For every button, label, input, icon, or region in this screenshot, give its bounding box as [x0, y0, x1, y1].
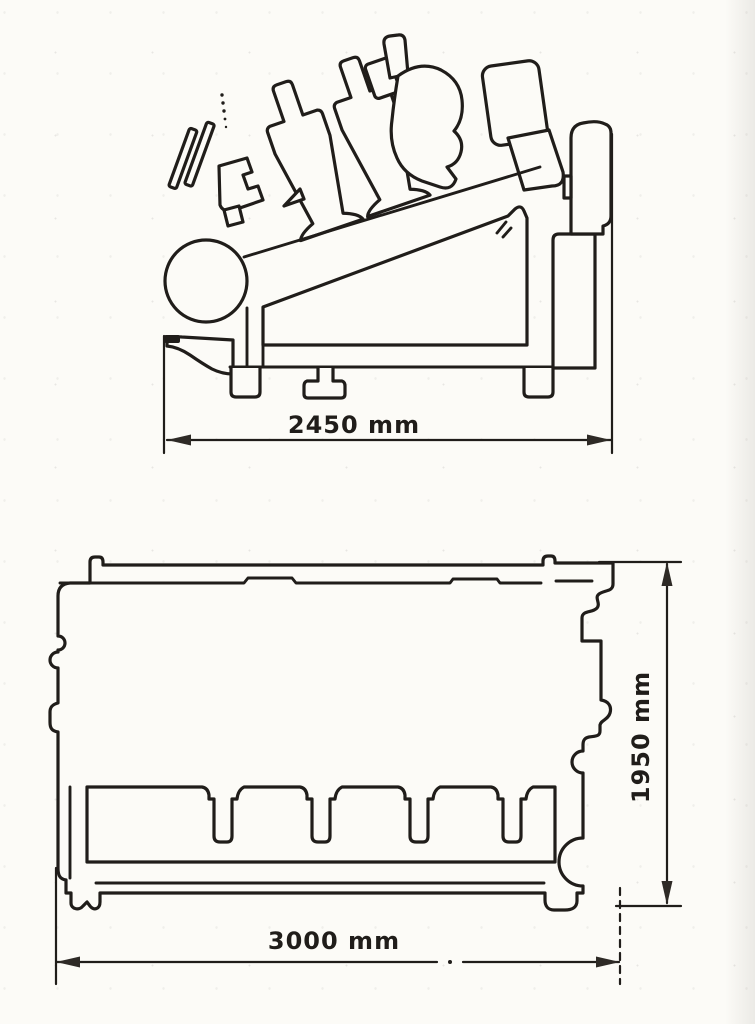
arrowhead-right — [587, 435, 611, 446]
engine-end-view: 2450 mm — [164, 35, 612, 453]
right-end-housing — [553, 122, 611, 368]
dotted-centerline-marks — [220, 93, 227, 128]
dimension-label-height: 1950 mm — [627, 671, 655, 803]
arrowhead-left — [56, 957, 80, 968]
dimension-line-dot — [448, 960, 452, 964]
right-housing-upper — [571, 122, 611, 234]
dimension-label-width: 2450 mm — [288, 411, 420, 439]
arrowhead-right — [596, 957, 620, 968]
bed-foot-left — [231, 368, 260, 397]
right-housing-lower — [553, 234, 595, 368]
dimension-label-length: 3000 mm — [268, 927, 400, 955]
rocker-lever-rods — [169, 122, 215, 189]
bed-foot-center-t — [304, 368, 345, 398]
right-housing-notch — [564, 176, 571, 198]
engine-side-view: 1950 mm 3000 mm — [50, 556, 681, 984]
dimension-height-1950: 1950 mm — [599, 562, 681, 906]
bracket-stub — [224, 206, 243, 226]
bed-foot-right — [524, 368, 553, 397]
bed-frame — [230, 367, 553, 398]
arrowhead-up — [662, 562, 673, 586]
scanned-engine-drawing-page: 2450 mm 1950 mm — [0, 0, 755, 1024]
arrowhead-left — [167, 435, 191, 446]
pump-housing-circle — [165, 240, 247, 322]
horn-bracket-dark-tip — [164, 335, 180, 343]
arrowhead-down — [662, 881, 673, 905]
bracket-boot — [219, 158, 263, 211]
engine-outline-drawing: 2450 mm 1950 mm — [0, 0, 755, 1024]
